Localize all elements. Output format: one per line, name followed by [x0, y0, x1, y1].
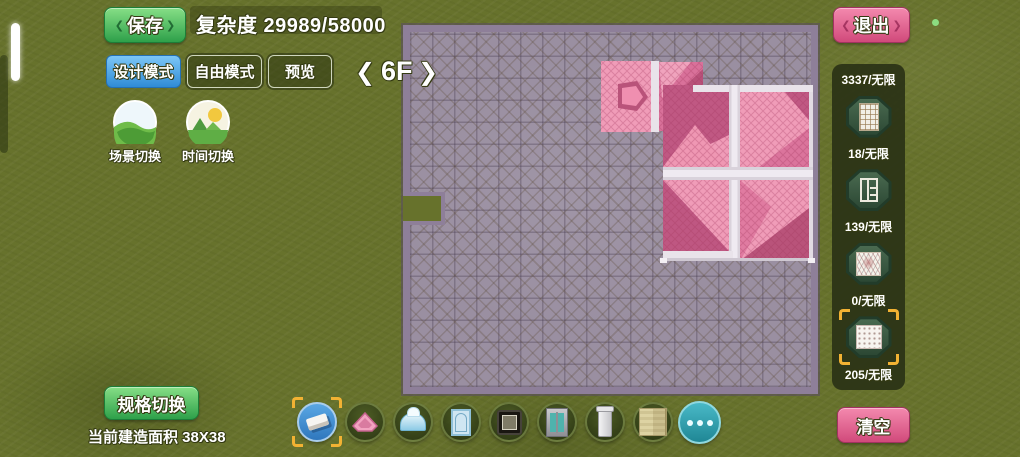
clear-button-label: 清空 [857, 413, 891, 438]
folding-screen-icon [639, 408, 667, 436]
tool-frame-button[interactable] [489, 402, 529, 442]
selection-bracket [292, 436, 303, 447]
door-icon [860, 178, 878, 202]
selection-bracket [292, 397, 303, 408]
item-tile-button-selected[interactable] [846, 316, 892, 358]
more-tools-button[interactable] [678, 401, 721, 444]
clear-button[interactable]: 清空 [837, 407, 910, 443]
build-area-label: 当前建造面积 38X38 [88, 426, 226, 447]
exit-button[interactable]: ❮ 退出 ❯ [833, 7, 910, 43]
tool-roof-button[interactable] [345, 402, 385, 442]
item-count: 3337/无限 [841, 71, 895, 88]
scroll-thumb[interactable] [11, 23, 20, 81]
item-window-button[interactable] [846, 96, 892, 138]
spec-switch-label: 规格切换 [118, 391, 186, 416]
design-mode-label: 设计模式 [113, 61, 173, 82]
selection-bracket [331, 436, 342, 447]
item-count: 18/无限 [848, 145, 889, 162]
more-icon [687, 420, 693, 426]
time-toggle-button[interactable] [186, 100, 230, 144]
floor-next-button[interactable]: ❯ [418, 58, 438, 87]
complexity-label: 复杂度 29989/58000 [196, 9, 386, 38]
item-count: 205/无限 [845, 366, 892, 383]
item-panel: 3337/无限 18/无限 139/无限 0/无限 205/无限 [832, 64, 905, 390]
preview-button[interactable]: 预览 [268, 55, 332, 88]
tool-dome-button[interactable] [393, 402, 433, 442]
preview-label: 预览 [285, 61, 315, 82]
cabinet-icon [546, 408, 568, 437]
floor-label: 6F [381, 56, 413, 87]
pink-roof-icon [351, 410, 379, 434]
design-mode-button[interactable]: 设计模式 [106, 55, 181, 88]
selection-bracket [839, 354, 850, 365]
eraser-icon [305, 413, 329, 431]
time-toggle-label: 时间切换 [172, 146, 244, 165]
save-chevron-left-icon: ❮ [112, 19, 127, 32]
lattice-tile-icon [856, 325, 882, 349]
scroll-track [0, 55, 8, 153]
dark-frame-icon [497, 410, 522, 435]
item-count: 139/无限 [845, 218, 892, 235]
tool-cabinet-button[interactable] [537, 402, 577, 442]
save-chevron-right-icon: ❯ [163, 19, 178, 32]
roof-structures [595, 55, 820, 270]
free-mode-button[interactable]: 自由模式 [187, 55, 262, 88]
time-icon [186, 100, 230, 144]
floor-prev-button[interactable]: ❮ [355, 58, 375, 87]
tool-eraser-button[interactable] [297, 402, 337, 442]
arch-window-icon [451, 409, 471, 436]
exit-chevron-right-icon: ❯ [890, 19, 905, 32]
exit-button-label: 退出 [854, 12, 890, 38]
scene-toggle-button[interactable] [113, 100, 157, 144]
tool-arch-window-button[interactable] [441, 402, 481, 442]
mural-icon [856, 252, 881, 276]
green-dot [932, 19, 939, 26]
grid-notch [403, 192, 445, 225]
save-button[interactable]: ❮ 保存 ❯ [104, 7, 186, 43]
save-button-label: 保存 [127, 12, 163, 38]
selection-bracket [888, 309, 899, 320]
selection-bracket [839, 309, 850, 320]
pillar-icon [598, 408, 612, 437]
spec-switch-button[interactable]: 规格切换 [104, 386, 199, 420]
game-screen: ❮ 保存 ❯ 复杂度 29989/58000 设计模式 自由模式 预览 ❮ 6F… [0, 0, 1020, 457]
selection-bracket [888, 354, 899, 365]
scene-icon [113, 100, 157, 144]
item-mural-button[interactable] [846, 243, 892, 285]
item-door-button[interactable] [846, 169, 892, 211]
paper-window-icon [859, 103, 879, 131]
scene-toggle-label: 场景切换 [99, 146, 171, 165]
item-count: 0/无限 [851, 292, 885, 309]
tool-screen-button[interactable] [633, 402, 673, 442]
free-mode-label: 自由模式 [194, 61, 254, 82]
exit-chevron-left-icon: ❮ [838, 19, 853, 32]
selection-bracket [331, 397, 342, 408]
dome-icon [400, 413, 426, 431]
tool-pillar-button[interactable] [585, 402, 625, 442]
roof-beam [651, 61, 659, 132]
